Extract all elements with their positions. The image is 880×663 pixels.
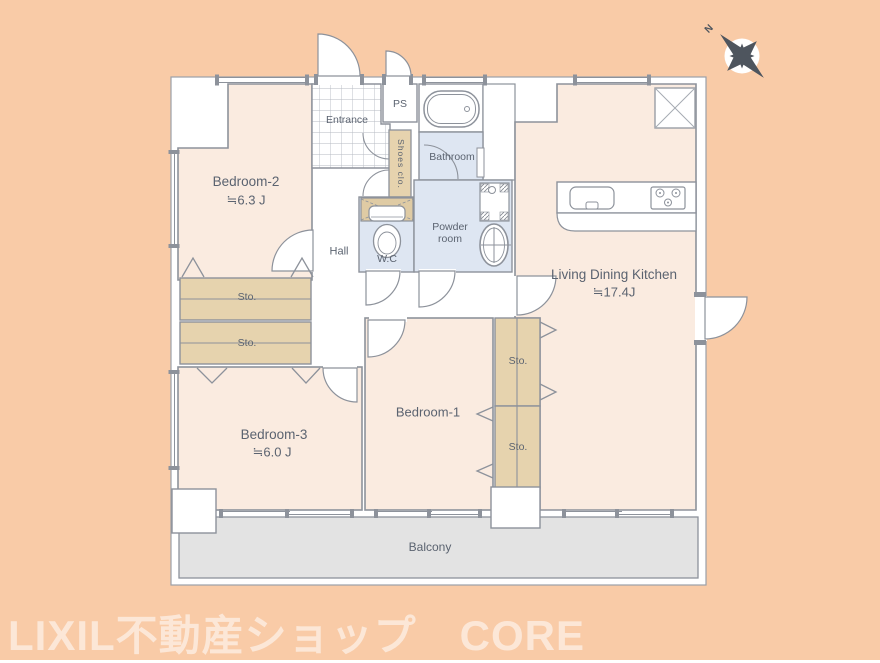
exterior-door-swing — [705, 297, 747, 339]
floorplan-page: N Bedroom-2 ≒6.3 J Entrance PS Bathroom … — [0, 0, 880, 660]
pipe-shaft-x — [655, 88, 695, 128]
washing-machine-pan — [480, 183, 509, 221]
bathtub — [424, 91, 479, 127]
bathroom-floor — [419, 132, 483, 180]
kitchen-counter — [557, 182, 696, 231]
compass-rose: N — [703, 19, 779, 93]
entrance-tiles — [312, 84, 390, 168]
balcony-floor — [179, 517, 698, 578]
watermark-text: LIXIL不動産ショップ CORE — [8, 602, 585, 663]
floorplan-drawing: N — [0, 0, 880, 660]
stove — [651, 187, 685, 209]
duct-space — [483, 84, 515, 180]
bathroom-door — [477, 148, 484, 177]
shoes-closet-floor — [389, 130, 411, 197]
compass-north-label: N — [703, 23, 716, 36]
ps-door-swing — [386, 51, 411, 76]
ps-shaft — [383, 84, 417, 122]
entrance-door-swing — [318, 34, 360, 76]
